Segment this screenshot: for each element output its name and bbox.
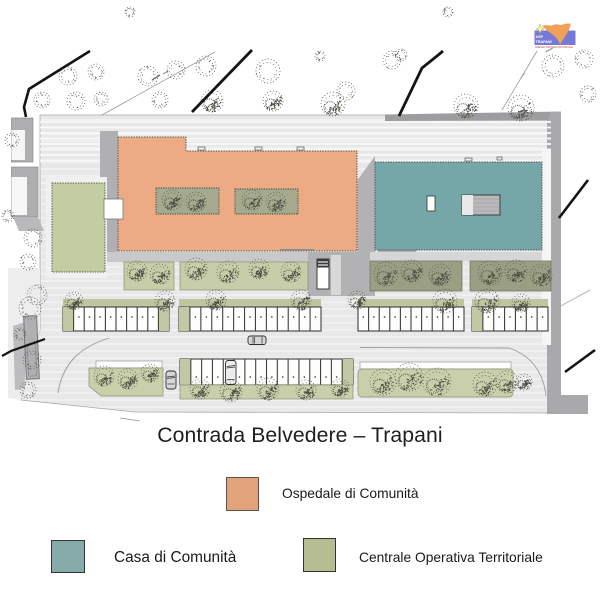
svg-text:AZIENDA SANITARIA PROVINCIALE: AZIENDA SANITARIA PROVINCIALE: [535, 46, 573, 49]
svg-text:ASP: ASP: [536, 35, 544, 39]
svg-text:TRAPANI: TRAPANI: [536, 40, 552, 44]
